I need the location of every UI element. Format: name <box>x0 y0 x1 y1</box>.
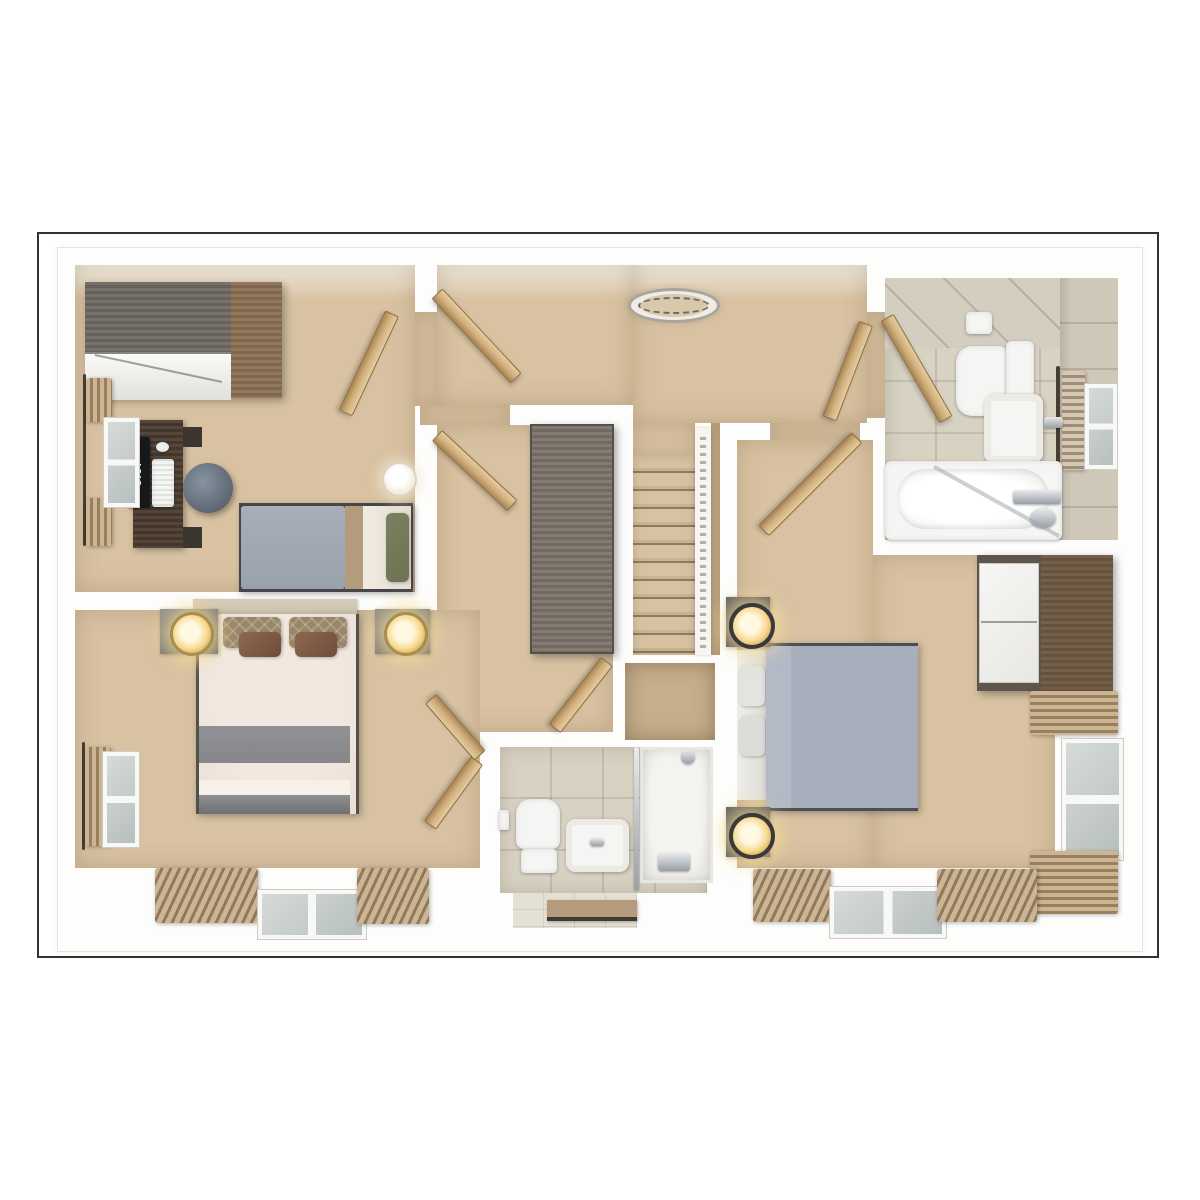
curtain-top-left-room-a <box>86 378 112 422</box>
master-cushion-left <box>239 632 281 657</box>
master-lamp-left <box>170 612 214 656</box>
floor-stairs-top <box>633 423 695 457</box>
master-bed-sheet-fold <box>199 780 350 795</box>
window-bathroom-top-right <box>1085 384 1117 469</box>
floor-plan-render: 8:37 <box>0 0 1200 1200</box>
right-bed-headboard <box>737 650 767 800</box>
floor-doorway-dressing <box>420 405 510 425</box>
shower-glass-panel <box>634 747 639 890</box>
master-bed-footboard <box>199 795 350 814</box>
curtain-right-bottom-right <box>937 869 1037 922</box>
single-bed-blanket <box>345 506 363 589</box>
shower-head <box>681 750 695 764</box>
curtain-master-bottom-right <box>357 868 429 924</box>
floor-airing-cupboard <box>625 663 715 740</box>
right-wardrobe-side <box>1041 555 1113 691</box>
master-bed-throw <box>199 726 350 763</box>
staircase-steps <box>633 455 695 655</box>
wardrobe-top-panel <box>85 282 231 352</box>
window-master-left <box>103 752 139 847</box>
right-lamp-top <box>729 603 775 649</box>
master-bed <box>196 614 359 814</box>
curtain-right-bottom-left <box>753 869 831 922</box>
single-bed-green-pillow <box>386 513 409 582</box>
desk-mouse <box>156 442 169 452</box>
desk-keyboard <box>152 459 174 507</box>
toilet-center-bowl <box>516 799 560 849</box>
bathtub-faucet <box>1013 490 1061 504</box>
right-wardrobe-doors <box>979 563 1039 683</box>
basin-center-tap <box>590 838 604 846</box>
basin-top-right <box>984 394 1043 463</box>
toilet-roll-holder-top-right <box>966 312 992 334</box>
ceiling-light-ring <box>638 297 710 314</box>
bath-mat <box>547 900 637 921</box>
curtain-right-bay-bottom <box>1030 851 1118 914</box>
right-bed-pillow-a <box>739 666 765 706</box>
desk-shelf-upper <box>183 427 202 447</box>
bedside-lamp-top-left-room <box>382 462 417 497</box>
towel <box>1062 371 1085 470</box>
toilet-center-cistern <box>521 849 557 873</box>
ceiling-light <box>628 288 720 323</box>
right-bed-pillow-b <box>739 716 765 756</box>
curtain-master-bottom-left <box>155 868 258 923</box>
desk-stool <box>183 463 233 513</box>
single-bed-duvet <box>241 506 345 589</box>
floor-stairwell-void <box>711 423 720 655</box>
shower-faucet <box>658 853 690 871</box>
single-bed <box>239 503 413 592</box>
wall-tap-top-right <box>1044 417 1063 428</box>
wardrobe-bedroom-top-left <box>85 282 282 398</box>
window-master-bottom <box>258 890 366 939</box>
desk-shelf-lower <box>183 527 202 548</box>
banister-balusters <box>700 432 706 651</box>
tall-wardrobe-landing <box>530 424 614 654</box>
window-right-bay <box>1062 739 1123 860</box>
window-bedroom-top-left <box>104 418 139 507</box>
right-wardrobe-door-seam <box>981 621 1037 623</box>
right-wardrobe <box>977 555 1113 691</box>
right-bed-duvet <box>766 643 918 811</box>
toilet-roll-holder-center <box>499 810 509 830</box>
floor-doorway-bedroom-top-left <box>415 312 437 406</box>
curtain-right-bay-top <box>1030 691 1118 735</box>
right-lamp-bottom <box>729 813 775 859</box>
window-right-bottom <box>830 887 946 938</box>
wardrobe-side-panel <box>231 282 282 398</box>
master-cushion-right <box>295 632 337 657</box>
master-lamp-right <box>384 612 428 656</box>
